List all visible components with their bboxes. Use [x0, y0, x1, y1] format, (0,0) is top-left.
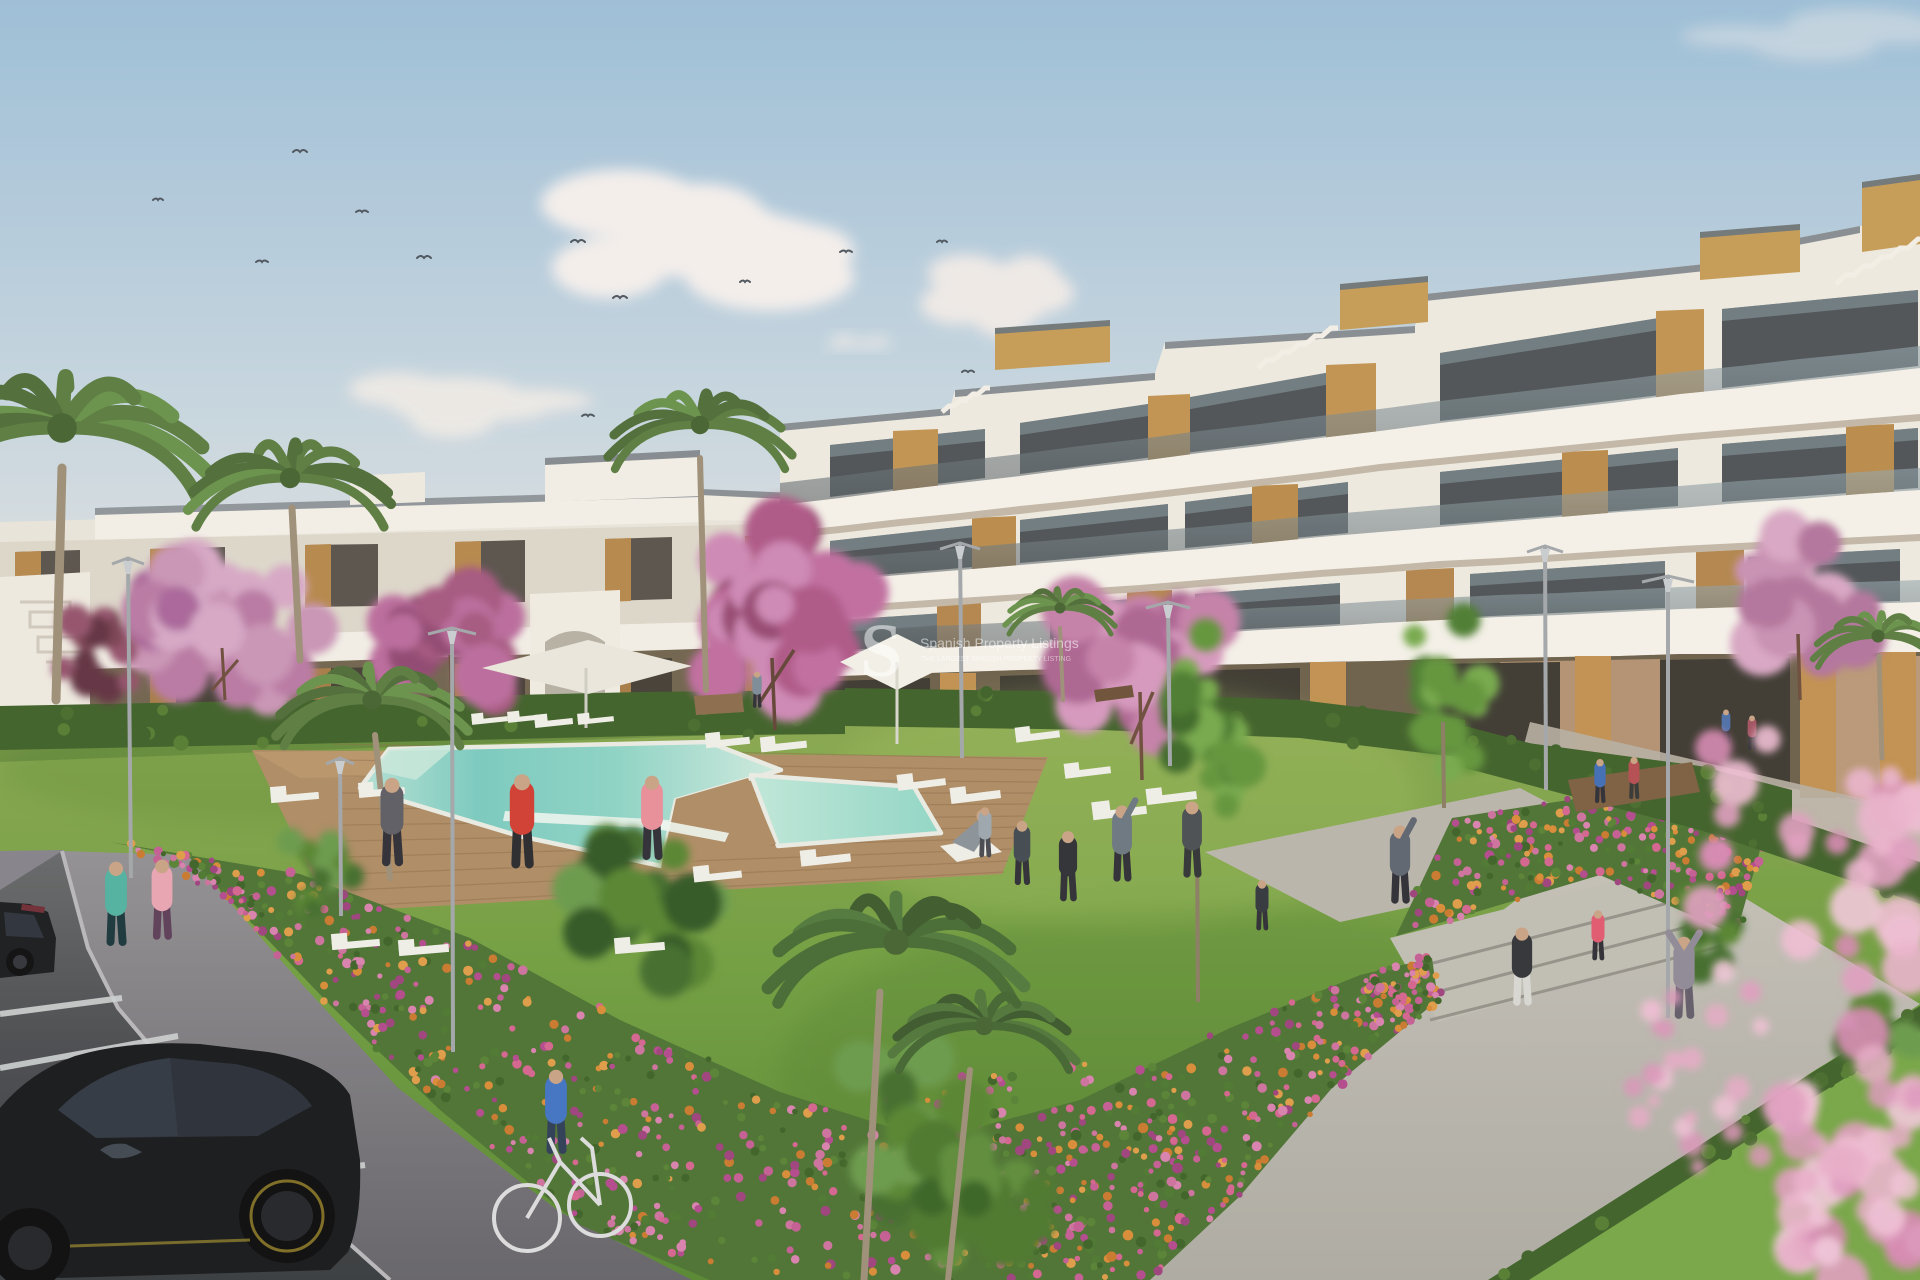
svg-text:THE LARGEST SPANISH PROPERTY L: THE LARGEST SPANISH PROPERTY LISTING — [921, 656, 1071, 663]
svg-text:S: S — [860, 609, 902, 693]
svg-text:Spanish Property Listings: Spanish Property Listings — [920, 635, 1079, 651]
